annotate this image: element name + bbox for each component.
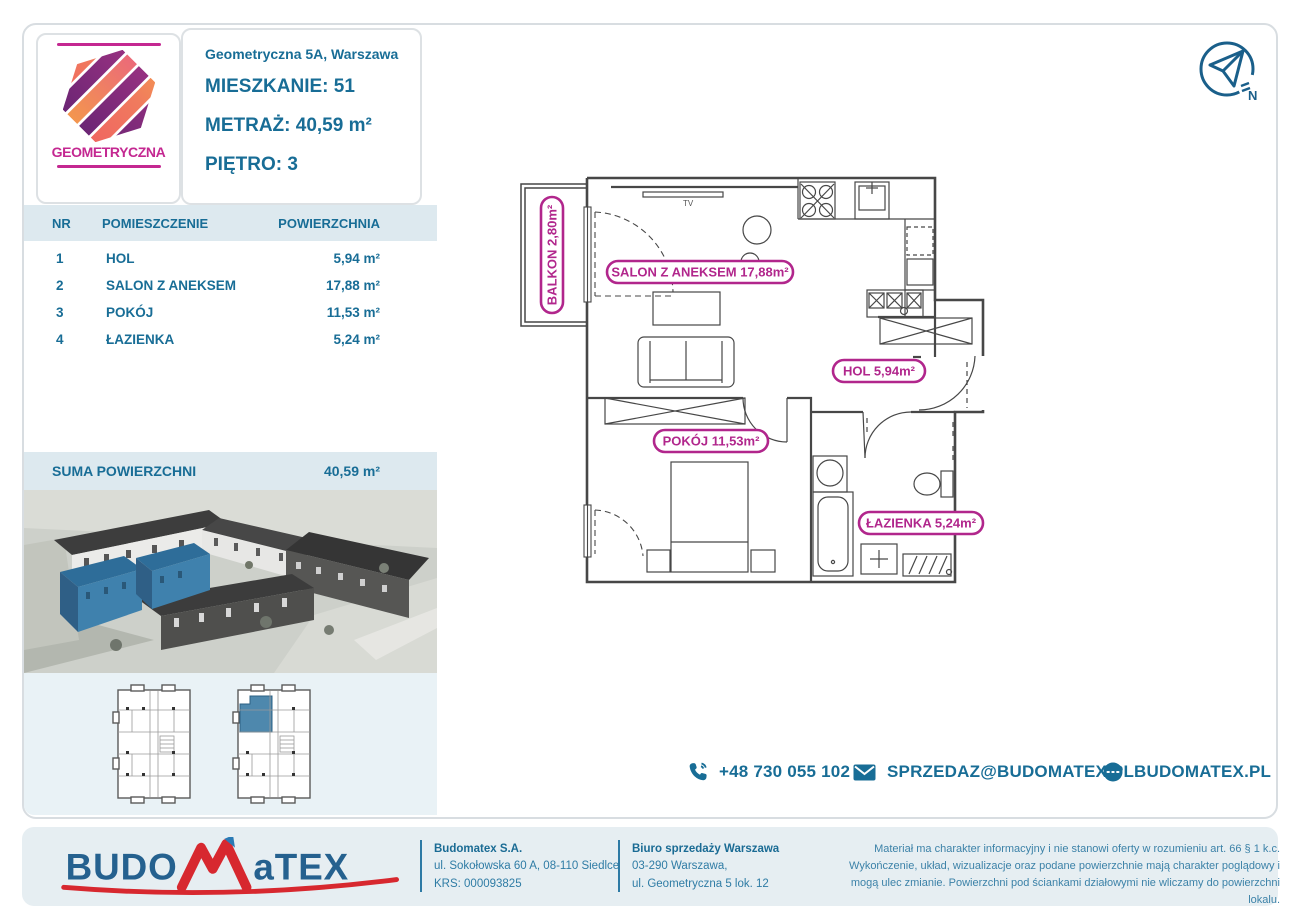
living-room-furniture	[638, 192, 771, 387]
floor-value: 3	[287, 154, 298, 175]
room-no: 3	[52, 305, 106, 320]
floor-line: PIĘTRO: 3	[205, 154, 420, 176]
apartment-header-card: Geometryczna 5A, Warszawa MIESZKANIE: 51…	[181, 28, 422, 205]
sales-office-name: Biuro sprzedaży Warszawa	[632, 841, 779, 858]
room-area: 5,24 m²	[333, 332, 380, 347]
tv-label: TV	[683, 199, 694, 208]
room-no: 1	[52, 251, 106, 266]
svg-text:POKÓJ 11,53m²: POKÓJ 11,53m²	[663, 434, 760, 449]
website-url: BUDOMATEX.PL	[1134, 762, 1271, 782]
floor-label: PIĘTRO:	[205, 154, 282, 175]
room-name: HOL	[106, 251, 333, 266]
rooms-table-header: NR POMIESZCZENIE POWIERZCHNIA	[24, 205, 437, 241]
room-area: 11,53 m²	[327, 305, 380, 320]
bathroom-label-pill: ŁAZIENKA 5,24m²	[859, 512, 983, 534]
living-room-label-pill: SALON Z ANEKSEM 17,88m²	[607, 261, 793, 283]
company-krs: KRS: 000093825	[434, 876, 619, 893]
col-header-nr: NR	[52, 216, 102, 231]
table-row: 2 SALON Z ANEKSEM 17,88 m²	[24, 272, 437, 299]
contact-phone[interactable]: +48 730 055 102	[688, 762, 850, 782]
compass-north-icon: N	[1196, 38, 1266, 108]
footer-office-column: Biuro sprzedaży Warszawa 03-290 Warszawa…	[632, 841, 779, 893]
room-area: 5,94 m²	[333, 251, 380, 266]
footer: BUDO aTEX Budomatex S.A. ul. Sokołowska …	[22, 827, 1278, 906]
apartment-label: MIESZKANIE:	[205, 76, 329, 97]
total-area-label: SUMA POWIERZCHNI	[52, 463, 324, 479]
svg-text:HOL 5,94m²: HOL 5,94m²	[843, 364, 916, 379]
footer-company-column: Budomatex S.A. ul. Sokołowska 60 A, 08-1…	[434, 841, 619, 893]
apartment-number-line: MIESZKANIE: 51	[205, 76, 420, 98]
room-name: SALON Z ANEKSEM	[106, 278, 326, 293]
logo-rule-top	[57, 43, 161, 46]
balcony-label-pill: BALKON 2,80m²	[541, 197, 563, 313]
table-row: 3 POKÓJ 11,53 m²	[24, 299, 437, 326]
brand-name: GEOMETRYCZNA	[52, 144, 166, 160]
total-area-band: SUMA POWIERZCHNI 40,59 m²	[24, 452, 437, 490]
col-header-area: POWIERZCHNIA	[278, 216, 380, 231]
footer-divider-2	[618, 840, 620, 892]
project-address: Geometryczna 5A, Warszawa	[205, 46, 420, 62]
col-header-room: POMIESZCZENIE	[102, 216, 278, 231]
geometryczna-logo-icon	[63, 50, 155, 142]
bedroom-furniture	[647, 462, 775, 572]
phone-number: +48 730 055 102	[719, 762, 850, 782]
company-address: ul. Sokołowska 60 A, 08-110 Siedlce	[434, 858, 619, 875]
svg-text:SALON Z ANEKSEM 17,88m²: SALON Z ANEKSEM 17,88m²	[611, 265, 789, 280]
bedroom-label-pill: POKÓJ 11,53m²	[654, 430, 768, 452]
legal-disclaimer: Materiał ma charakter informacyjny i nie…	[828, 841, 1280, 909]
contact-website[interactable]: BUDOMATEX.PL	[1103, 762, 1271, 782]
sales-office-city: 03-290 Warszawa,	[632, 858, 779, 875]
footer-divider-1	[420, 840, 422, 892]
aerial-site-render	[24, 490, 437, 673]
logo-text-budo: BUDO	[66, 847, 178, 888]
logo-letter-m	[182, 844, 247, 888]
room-name: ŁAZIENKA	[106, 332, 333, 347]
sales-office-street: ul. Geometryczna 5 lok. 12	[632, 876, 779, 893]
phone-icon	[688, 762, 708, 782]
floor-key-plan-left	[112, 682, 196, 806]
floor-key-plan-right	[232, 682, 316, 806]
logo-rule-bottom	[57, 165, 161, 168]
bedroom-window-swing	[595, 510, 643, 556]
area-label: METRAŻ:	[205, 115, 290, 136]
room-name: POKÓJ	[106, 305, 327, 320]
developer-logo-card: GEOMETRYCZNA	[36, 33, 181, 204]
total-area-value: 40,59 m²	[324, 463, 380, 479]
svg-text:ŁAZIENKA 5,24m²: ŁAZIENKA 5,24m²	[866, 516, 977, 531]
svg-text:BALKON 2,80m²: BALKON 2,80m²	[545, 204, 560, 305]
envelope-icon	[853, 764, 876, 781]
room-no: 2	[52, 278, 106, 293]
budomatex-logo: BUDO aTEX	[58, 837, 410, 897]
contact-email[interactable]: SPRZEDAZ@BUDOMATEX.PL	[853, 762, 1134, 782]
room-area: 17,88 m²	[326, 278, 380, 293]
logo-text-atex: aTEX	[253, 847, 349, 888]
kitchen-fixtures	[798, 178, 935, 317]
rooms-table-body: 1 HOL 5,94 m² 2 SALON Z ANEKSEM 17,88 m²…	[24, 245, 437, 353]
apartment-card-page: GEOMETRYCZNA Geometryczna 5A, Warszawa M…	[0, 0, 1300, 918]
apartment-floor-plan: TV	[515, 170, 985, 590]
hall-label-pill: HOL 5,94m²	[833, 360, 925, 382]
apartment-value: 51	[334, 76, 355, 97]
room-no: 4	[52, 332, 106, 347]
www-globe-icon	[1103, 762, 1123, 782]
table-row: 1 HOL 5,94 m²	[24, 245, 437, 272]
table-row: 4 ŁAZIENKA 5,24 m²	[24, 326, 437, 353]
building-floor-overview	[24, 673, 437, 815]
area-value: 40,59 m²	[296, 115, 372, 136]
company-name: Budomatex S.A.	[434, 841, 619, 858]
compass-north-letter: N	[1248, 88, 1257, 103]
total-area-line: METRAŻ: 40,59 m²	[205, 115, 420, 137]
email-address: SPRZEDAZ@BUDOMATEX.PL	[887, 762, 1134, 782]
